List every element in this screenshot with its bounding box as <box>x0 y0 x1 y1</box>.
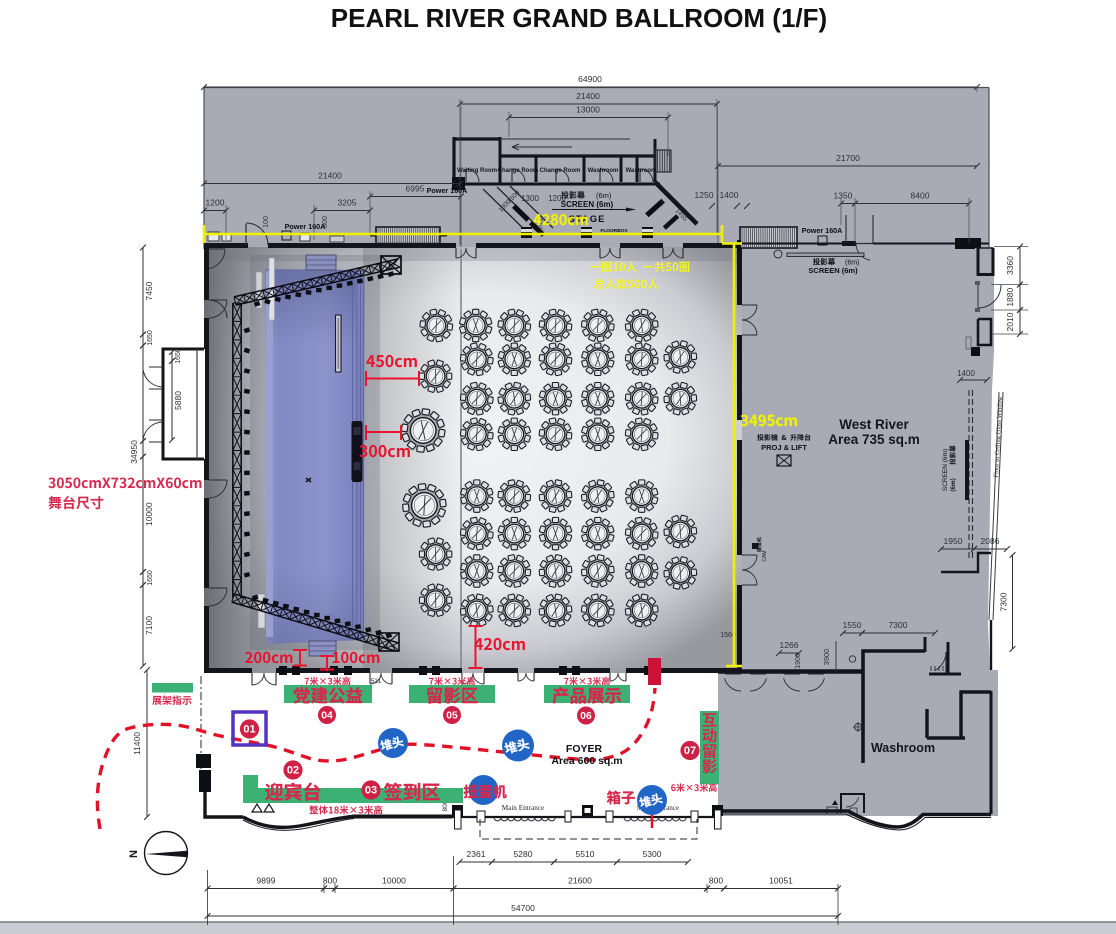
svg-text:Washroom: Washroom <box>626 168 657 174</box>
svg-text:10000: 10000 <box>144 502 154 526</box>
svg-text:SCREEN (6m): SCREEN (6m) <box>942 449 949 491</box>
svg-text:03: 03 <box>365 785 377 797</box>
svg-text:1950: 1950 <box>944 536 963 546</box>
svg-text:PROJ & LIFT: PROJ & LIFT <box>761 443 807 452</box>
svg-text:7100: 7100 <box>144 616 154 635</box>
svg-text:7450: 7450 <box>144 281 154 300</box>
svg-text:05: 05 <box>446 710 458 721</box>
svg-text:CAM: CAM <box>762 550 768 561</box>
svg-text:1250: 1250 <box>695 190 714 200</box>
svg-text:5300: 5300 <box>643 849 662 859</box>
svg-text:10051: 10051 <box>769 876 793 886</box>
svg-text:6995: 6995 <box>406 184 425 194</box>
svg-text:2361: 2361 <box>467 849 486 859</box>
svg-text:8400: 8400 <box>911 191 930 201</box>
svg-text:04: 04 <box>321 710 333 721</box>
svg-text:02: 02 <box>287 765 299 777</box>
svg-text:21700: 21700 <box>836 153 860 163</box>
svg-text:(6m): (6m) <box>596 191 612 200</box>
svg-text:SCREEN (6m): SCREEN (6m) <box>561 200 614 209</box>
svg-text:9899: 9899 <box>257 876 276 886</box>
svg-text:SCREEN (6m): SCREEN (6m) <box>808 266 858 275</box>
svg-text:13000: 13000 <box>576 105 600 115</box>
svg-text:1650: 1650 <box>147 570 154 586</box>
svg-text:5880: 5880 <box>173 391 183 410</box>
svg-text:11400: 11400 <box>132 732 142 755</box>
svg-text:Change Room: Change Room <box>498 168 539 174</box>
svg-text:7300: 7300 <box>999 592 1009 611</box>
svg-text:21600: 21600 <box>568 876 592 886</box>
svg-text:3205: 3205 <box>338 198 357 208</box>
svg-text:1880: 1880 <box>1005 287 1015 306</box>
svg-text:1550: 1550 <box>843 620 862 630</box>
svg-text:100: 100 <box>263 216 270 228</box>
svg-text:5510: 5510 <box>576 849 595 859</box>
svg-text:Waiting Room: Waiting Room <box>457 168 497 174</box>
svg-text:1200: 1200 <box>206 198 225 208</box>
svg-text:21400: 21400 <box>318 171 342 181</box>
svg-text:Area 735 sq.m: Area 735 sq.m <box>828 432 920 447</box>
svg-text:N: N <box>128 850 140 858</box>
svg-text:Change Room: Change Room <box>540 168 581 174</box>
svg-text:Washroom: Washroom <box>588 168 619 174</box>
svg-text:2010: 2010 <box>1005 312 1015 331</box>
svg-text:Main Entrance: Main Entrance <box>502 804 545 812</box>
svg-text:800: 800 <box>709 876 723 886</box>
svg-text:1350: 1350 <box>834 191 853 201</box>
svg-text:1200: 1200 <box>548 194 566 203</box>
svg-text:21400: 21400 <box>576 91 600 101</box>
svg-text:1650: 1650 <box>147 330 154 346</box>
svg-text:Power 160A: Power 160A <box>285 222 326 231</box>
svg-text:Power 160A: Power 160A <box>802 226 843 235</box>
svg-text:1266: 1266 <box>780 640 799 650</box>
svg-text:7300: 7300 <box>889 620 908 630</box>
svg-text:3900: 3900 <box>822 649 831 666</box>
svg-text:1650: 1650 <box>175 348 182 364</box>
svg-text:West River: West River <box>839 417 909 432</box>
svg-text:Washroom: Washroom <box>871 741 935 755</box>
svg-text:10000: 10000 <box>382 876 406 886</box>
svg-text:800: 800 <box>322 216 329 228</box>
svg-text:1300: 1300 <box>521 194 539 203</box>
svg-text:1400: 1400 <box>720 190 739 200</box>
svg-text:Area 600 sq.m: Area 600 sq.m <box>551 755 622 767</box>
svg-text:521: 521 <box>371 678 382 685</box>
svg-text:64900: 64900 <box>578 74 602 84</box>
svg-text:54700: 54700 <box>511 903 535 913</box>
svg-text:PEARL RIVER GRAND BALLROOM (1/: PEARL RIVER GRAND BALLROOM (1/F) <box>331 3 827 33</box>
svg-text:3360: 3360 <box>1005 256 1015 275</box>
svg-text:5280: 5280 <box>514 849 533 859</box>
svg-text:07: 07 <box>684 745 696 757</box>
svg-text:06: 06 <box>580 711 592 722</box>
svg-text:34950: 34950 <box>129 440 139 464</box>
svg-text:01: 01 <box>243 724 255 736</box>
svg-text:1400: 1400 <box>957 369 975 378</box>
svg-text:2086: 2086 <box>981 536 1000 546</box>
svg-text:1900: 1900 <box>795 653 802 669</box>
svg-text:FOYER: FOYER <box>566 743 603 755</box>
